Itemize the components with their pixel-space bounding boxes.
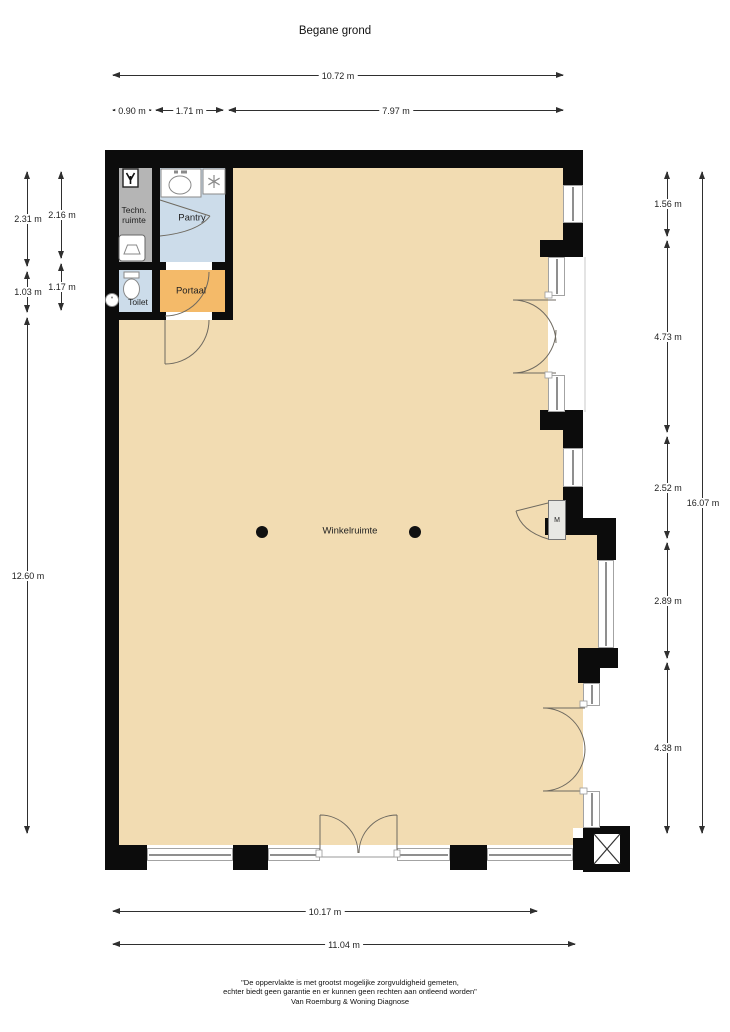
disclaimer-line1: "De oppervlakte is met grootst mogelijke… xyxy=(90,978,610,987)
dim-top-seg2: 1.71 m xyxy=(156,110,223,111)
wall-pier xyxy=(233,845,268,870)
dim-right-seg3: 2.52 m xyxy=(667,437,668,538)
wall-segment xyxy=(152,168,160,262)
dim-bottom-total: 11.04 m xyxy=(113,944,575,945)
window xyxy=(583,791,600,828)
dim-left-inner-seg1: 2.16 m xyxy=(61,172,62,258)
page-title: Begane grond xyxy=(299,25,371,37)
window xyxy=(268,848,320,861)
disclaimer-line3: Van Roemburg & Woning Diagnose xyxy=(90,997,610,1006)
shaft-inner xyxy=(594,834,620,864)
floorplan-page: Begane grond xyxy=(0,0,730,1032)
window xyxy=(397,848,450,861)
window xyxy=(548,257,565,296)
label-pantry: Pantry xyxy=(178,214,205,225)
window xyxy=(563,448,583,487)
wall-pier xyxy=(563,430,583,448)
meterkast-label: M xyxy=(554,517,560,524)
dim-right-seg1: 1.56 m xyxy=(667,172,668,236)
door-gap-pantry-portaal xyxy=(166,262,212,270)
dim-right-seg4: 2.89 m xyxy=(667,543,668,658)
window xyxy=(487,848,573,861)
door-gap-portaal-shop xyxy=(166,312,212,320)
dim-top-seg1: 0.90 m xyxy=(113,110,151,111)
dim-right-total: 16.07 m xyxy=(702,172,703,833)
wall-pier xyxy=(597,535,616,560)
label-portaal: Portaal xyxy=(176,287,206,298)
dim-top-total: 10.72 m xyxy=(113,75,563,76)
window xyxy=(598,560,614,648)
label-toilet: Toilet xyxy=(128,298,148,308)
dim-left-outer-seg2: 1.03 m xyxy=(27,272,28,312)
floor-strip xyxy=(548,535,598,648)
label-winkelruimte: Winkelruimte xyxy=(323,527,378,538)
dim-bottom-inner: 10.17 m xyxy=(113,911,537,912)
wall-pier xyxy=(563,223,583,240)
dim-left-outer-seg3: 12.60 m xyxy=(27,318,28,833)
dim-right-seg2: 4.73 m xyxy=(667,241,668,432)
dim-left-inner-seg2: 1.17 m xyxy=(61,264,62,310)
wall-pier xyxy=(578,648,618,668)
disclaimer-line2: echter biedt geen garantie en er kunnen … xyxy=(90,987,610,996)
window xyxy=(563,185,583,223)
wall-pier xyxy=(540,240,583,257)
dim-left-outer-seg1: 2.31 m xyxy=(27,172,28,266)
wall-left xyxy=(105,150,119,870)
label-techn-ruimte: Techn. ruimte xyxy=(121,206,146,226)
window xyxy=(548,375,565,412)
dim-top-seg3: 7.97 m xyxy=(229,110,563,111)
window xyxy=(147,848,233,861)
wall-segment xyxy=(225,150,233,320)
floor-strip xyxy=(548,828,573,845)
dim-right-seg5: 4.38 m xyxy=(667,663,668,833)
meterkast-box: M xyxy=(548,500,566,540)
wall-pier xyxy=(450,845,487,870)
wall-pier xyxy=(563,150,583,185)
wall-pier xyxy=(105,845,147,870)
disclaimer: "De oppervlakte is met grootst mogelijke… xyxy=(90,978,610,1006)
wall-pier xyxy=(540,410,583,430)
wall-pier xyxy=(578,668,600,683)
window xyxy=(583,683,600,706)
wall-top xyxy=(105,150,583,168)
